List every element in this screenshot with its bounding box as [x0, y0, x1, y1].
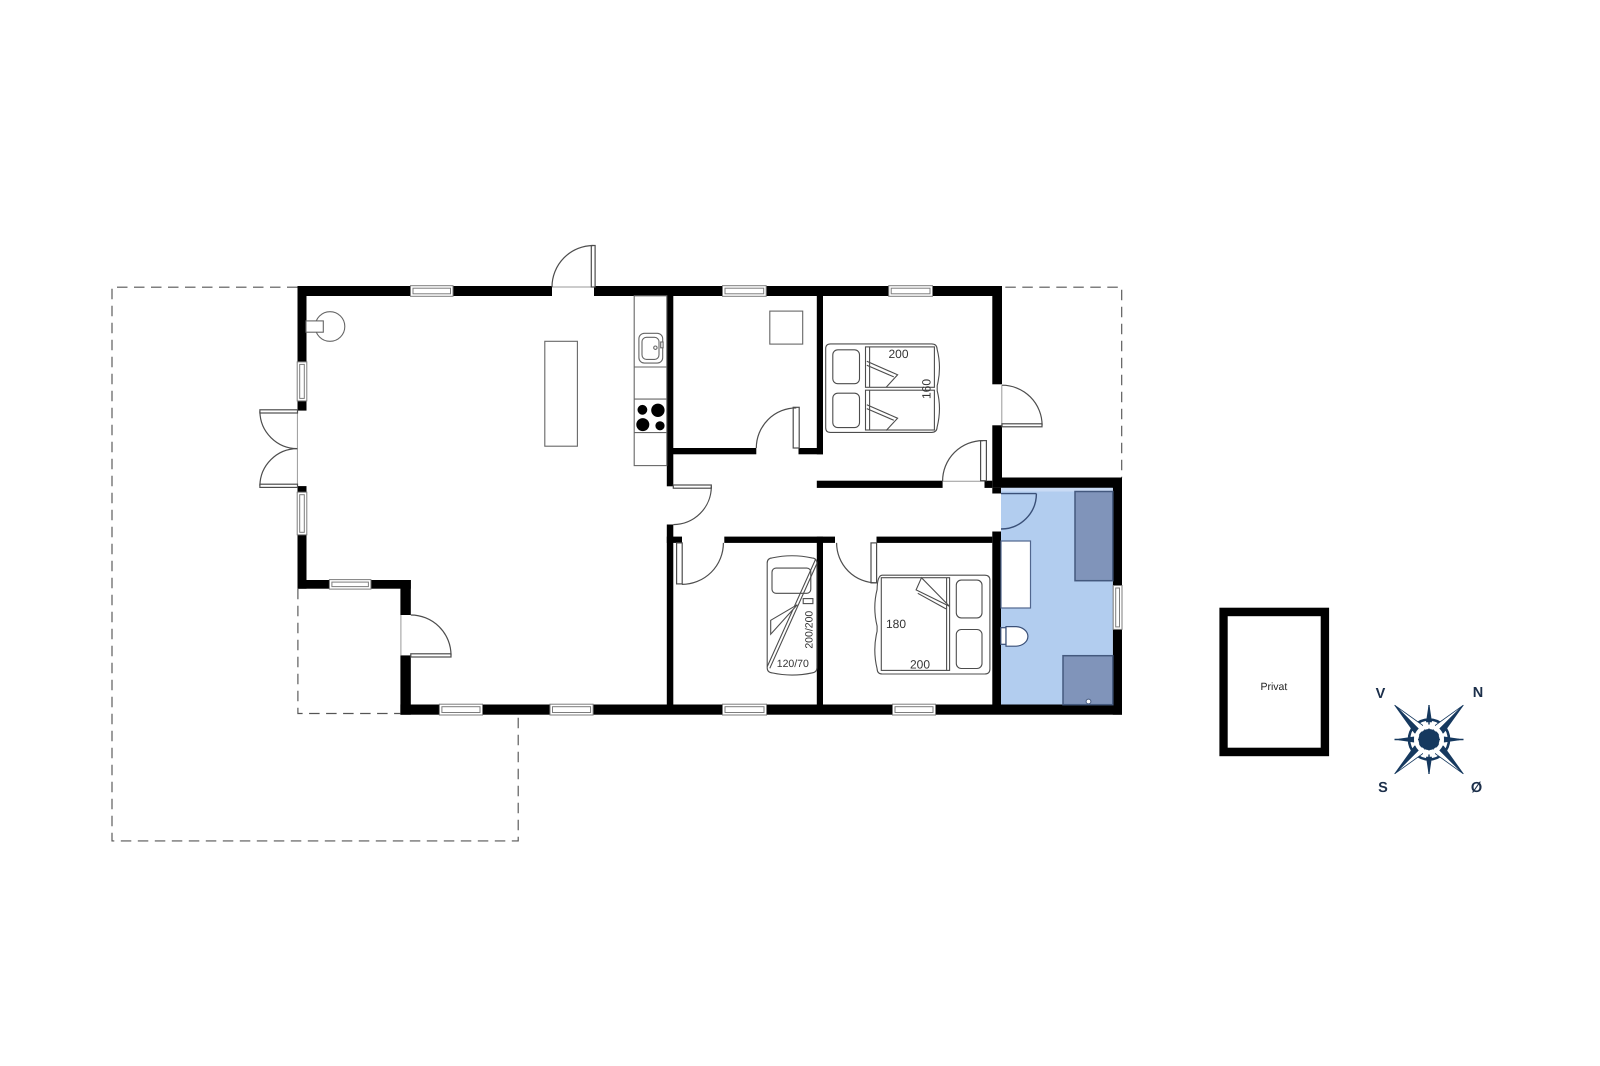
svg-text:S: S — [1378, 780, 1388, 796]
svg-text:120/70: 120/70 — [777, 658, 809, 670]
svg-text:Ø: Ø — [1471, 780, 1482, 796]
svg-text:Privat: Privat — [1260, 681, 1287, 693]
svg-text:180: 180 — [886, 617, 906, 631]
svg-text:200/200: 200/200 — [803, 611, 815, 649]
svg-text:N: N — [1473, 685, 1483, 701]
svg-text:200: 200 — [910, 658, 930, 672]
svg-text:V: V — [1376, 686, 1386, 702]
svg-text:200: 200 — [888, 347, 908, 361]
svg-text:160: 160 — [919, 379, 933, 399]
